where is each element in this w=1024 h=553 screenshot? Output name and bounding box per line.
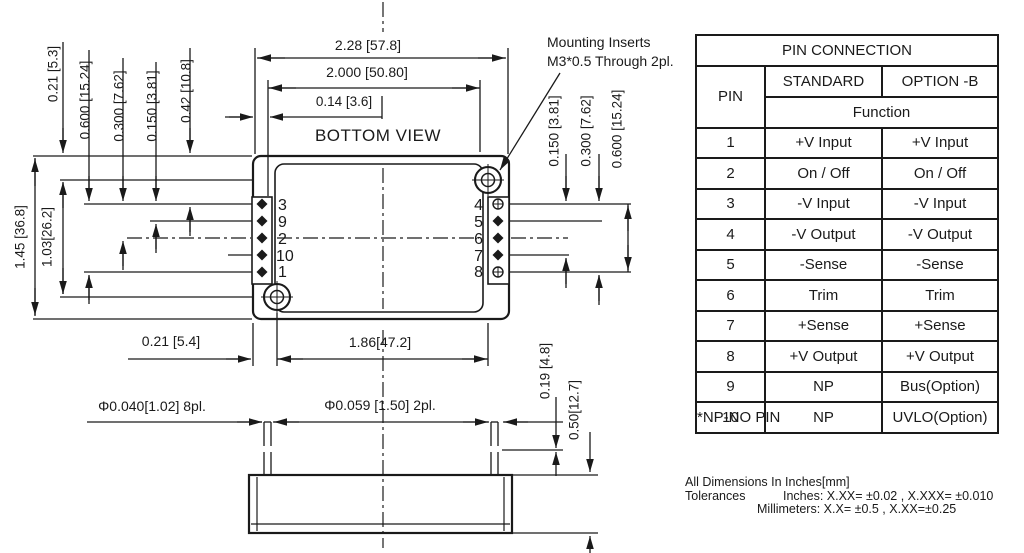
tolerance-notes: All Dimensions In Inches[mm] Tolerances …	[685, 476, 993, 517]
pin-cell: 2	[696, 158, 765, 189]
pin-cell: 6	[696, 280, 765, 311]
pin-number-7: 7	[474, 248, 483, 265]
mounting-note-line2: M3*0.5 Through 2pl.	[547, 53, 674, 69]
pin-connection-table: PIN CONNECTION PIN STANDARD OPTION -B Fu…	[695, 34, 999, 434]
function-header: Function	[765, 97, 998, 128]
pin-number-2: 2	[278, 231, 287, 248]
option-cell: Bus(Option)	[882, 372, 998, 403]
standard-cell: NP	[765, 372, 882, 403]
pin-number-4: 4	[474, 197, 483, 214]
pin-number-6: 6	[474, 231, 483, 248]
tolerances-label: Tolerances	[685, 490, 783, 504]
bottom-left-dimensions: 0.21 [5.4] 1.86[47.2]	[128, 313, 488, 366]
pin-cell: 7	[696, 311, 765, 342]
option-cell: UVLO(Option)	[882, 402, 998, 433]
standard-cell: +V Output	[765, 341, 882, 372]
dim-pin-pitch-2x: 0.300 [7.62]	[112, 70, 127, 141]
pin-number-3: 3	[278, 197, 287, 214]
dim-right-pitch: 0.150 [3.81]	[547, 95, 562, 166]
table-row: 9NPBus(Option)	[696, 372, 998, 403]
pin-number-10: 10	[276, 248, 294, 265]
pin-number-8: 8	[474, 264, 483, 281]
dim-right-span: 0.600 [15.24]	[610, 90, 625, 169]
option-cell: +V Output	[882, 341, 998, 372]
dim-edge-to-pin-y: 0.42 [10.8]	[179, 59, 194, 123]
mounting-hole-top-right	[472, 164, 504, 196]
top-dimensions: 2.28 [57.8] 2.000 [50.80] 0.14 [3.6]	[225, 37, 508, 196]
bottom-dimensions: Φ0.040[1.02] 8pl. Φ0.059 [1.50] 2pl. 0.1…	[87, 343, 598, 553]
option-cell: On / Off	[882, 158, 998, 189]
standard-cell: -V Input	[765, 189, 882, 220]
dim-body-width: 2.28 [57.8]	[335, 37, 401, 53]
right-dimensions: 0.150 [3.81] 0.300 [7.62] 0.600 [15.24]	[510, 90, 631, 305]
standard-cell: +V Input	[765, 128, 882, 159]
pin-cell: 8	[696, 341, 765, 372]
dim-edge-to-hole-y: 0.21 [5.3]	[46, 46, 61, 102]
standard-cell: NP	[765, 402, 882, 433]
dim-pin-span-y: 0.600 [15.24]	[78, 61, 93, 140]
option-cell: +Sense	[882, 311, 998, 342]
pin-number-1: 1	[278, 264, 287, 281]
table-row: 2On / OffOn / Off	[696, 158, 998, 189]
dim-right-pitch-2x: 0.300 [7.62]	[579, 95, 594, 166]
standard-cell: -Sense	[765, 250, 882, 281]
table-row: 5-Sense-Sense	[696, 250, 998, 281]
tolerances-inches: Inches: X.XX= ±0.02 , X.XXX= ±0.010	[783, 490, 993, 504]
mounting-hole-bottom-left	[261, 281, 293, 313]
table-row: 7+Sense+Sense	[696, 311, 998, 342]
tolerances-millimeters: Millimeters: X.X= ±0.5 , X.XX=±0.25	[757, 503, 993, 517]
dim-body-height: 1.45 [36.8]	[13, 205, 28, 269]
option-cell: +V Input	[882, 128, 998, 159]
column-header-standard: STANDARD	[765, 66, 882, 97]
left-dimensions: 0.21 [5.3] 0.600 [15.24] 0.300 [7.62] 0.…	[13, 42, 252, 319]
table-title: PIN CONNECTION	[696, 35, 998, 66]
datasheet-page: 3 9 2 10 1 4 5 6 7 8 BOTTOM VIEW Mountin…	[0, 0, 1024, 553]
side-view-pins	[264, 422, 498, 475]
pin-cell: 3	[696, 189, 765, 220]
table-row: 6TrimTrim	[696, 280, 998, 311]
pin-cell: 1	[696, 128, 765, 159]
option-cell: -V Output	[882, 219, 998, 250]
standard-cell: On / Off	[765, 158, 882, 189]
dim-pin-pitch: 0.150 [3.81]	[145, 70, 160, 141]
pin-cell: 5	[696, 250, 765, 281]
table-row: 8+V Output+V Output	[696, 341, 998, 372]
dim-insert-dia: Φ0.059 [1.50] 2pl.	[324, 397, 436, 413]
pin-number-9: 9	[278, 214, 287, 231]
module-side-view	[249, 422, 512, 533]
mounting-note-line1: Mounting Inserts	[547, 34, 651, 50]
table-row: 4-V Output-V Output	[696, 219, 998, 250]
view-title: BOTTOM VIEW	[315, 126, 441, 145]
dim-pin-step: 0.19 [4.8]	[538, 343, 553, 399]
standard-cell: Trim	[765, 280, 882, 311]
table-row: 3-V Input-V Input	[696, 189, 998, 220]
option-cell: -V Input	[882, 189, 998, 220]
mechanical-drawing: 3 9 2 10 1 4 5 6 7 8 BOTTOM VIEW Mountin…	[0, 0, 690, 553]
dim-hole-span-x: 1.86[47.2]	[349, 334, 411, 350]
dim-pin-length: 0.50[12.7]	[567, 380, 582, 440]
pin-cell: 4	[696, 219, 765, 250]
dim-hole-span-y: 1.03[26.2]	[40, 207, 55, 267]
column-header-pin: PIN	[696, 66, 765, 128]
pin-number-5: 5	[474, 214, 483, 231]
dim-edge-to-hole-x: 0.21 [5.4]	[142, 333, 200, 349]
option-cell: Trim	[882, 280, 998, 311]
standard-cell: +Sense	[765, 311, 882, 342]
np-footnote: *NP-NO PIN	[697, 409, 780, 426]
table-row: 1+V Input+V Input	[696, 128, 998, 159]
option-cell: -Sense	[882, 250, 998, 281]
dimensions-note: All Dimensions In Inches[mm]	[685, 476, 993, 490]
dim-pin-dia: Φ0.040[1.02] 8pl.	[98, 398, 206, 414]
column-header-option-b: OPTION -B	[882, 66, 998, 97]
standard-cell: -V Output	[765, 219, 882, 250]
module-bottom-view: 3 9 2 10 1 4 5 6 7 8 BOTTOM VIEW	[252, 126, 509, 319]
pin-cell: 9	[696, 372, 765, 403]
dim-pin-edge-x: 0.14 [3.6]	[316, 94, 372, 109]
dim-pin-span-x: 2.000 [50.80]	[326, 64, 408, 80]
